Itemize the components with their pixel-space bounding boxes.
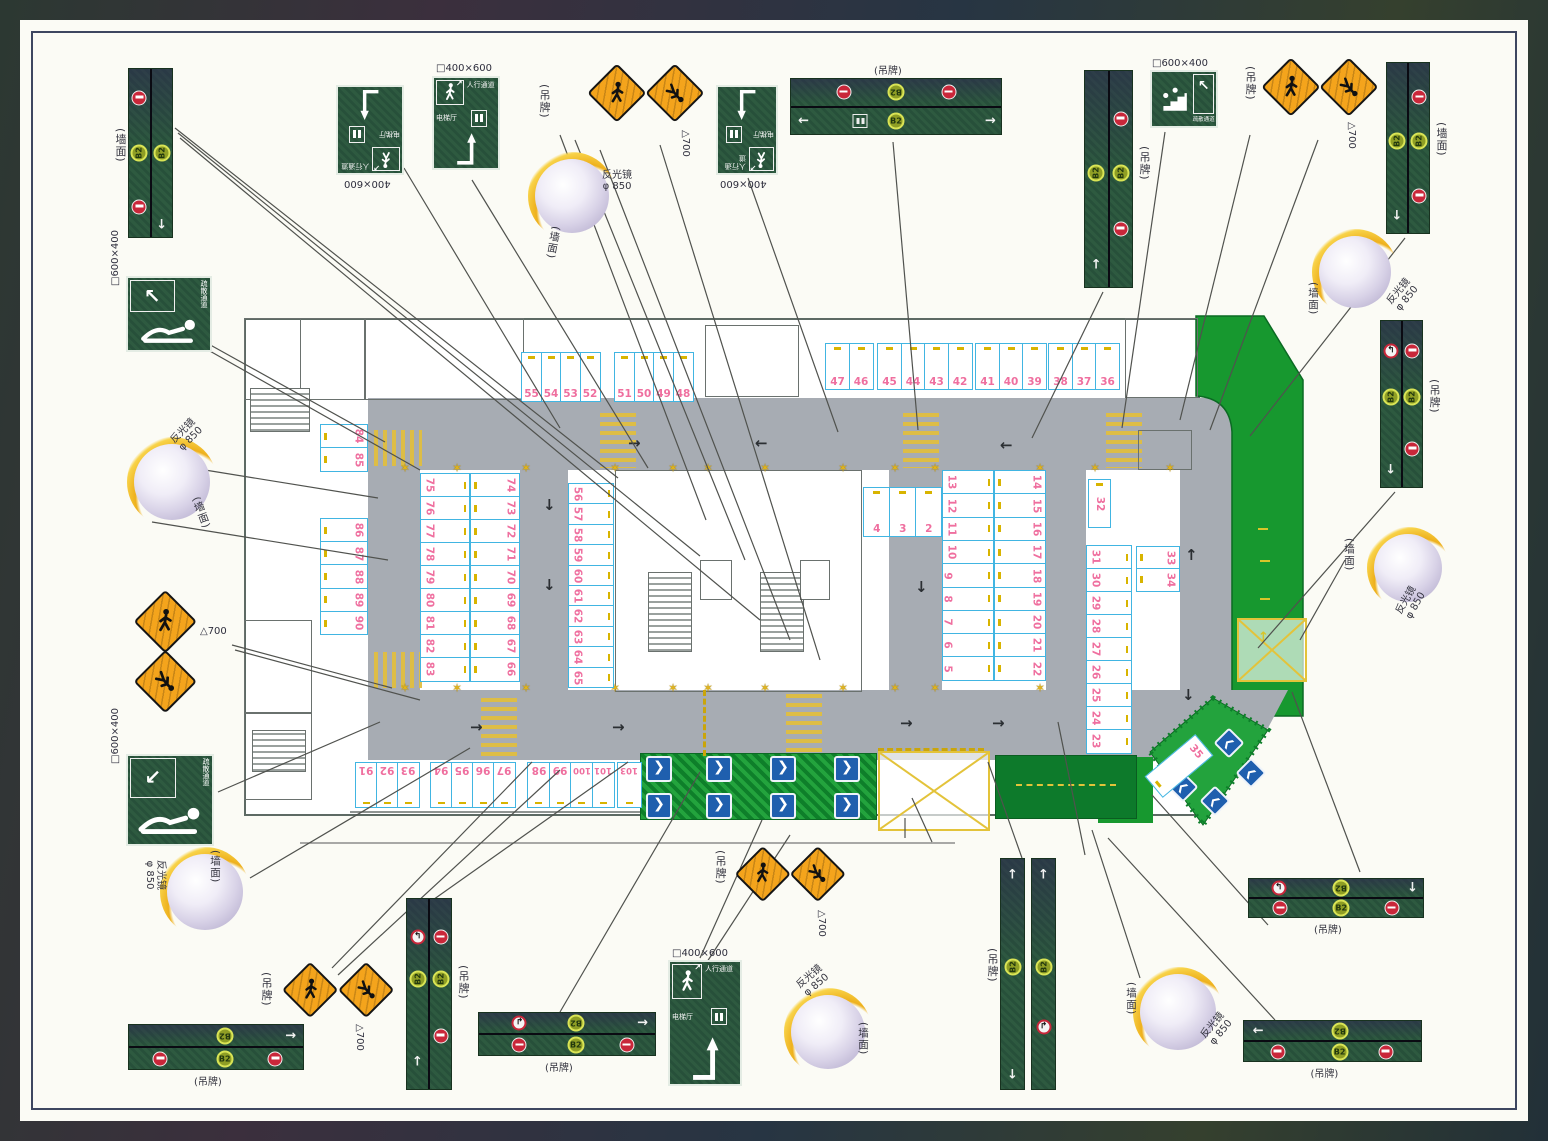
- parking-stall: 23: [1086, 729, 1132, 754]
- no-entry-icon: [1270, 1044, 1285, 1059]
- no-entry-icon: [1405, 343, 1420, 358]
- stall-number: 23: [1090, 734, 1100, 749]
- parking-stall: 39: [1022, 343, 1047, 390]
- wheel-stop-tick: [474, 643, 477, 650]
- parking-stall: 83: [420, 657, 470, 682]
- stall-number: 12: [946, 498, 956, 513]
- convex-mirror: [535, 159, 609, 233]
- stall-number: 87: [354, 546, 364, 561]
- wheel-stop-tick: [324, 527, 327, 534]
- hang-tag-label: (吊牌): [712, 850, 728, 885]
- warning-diamond-sign: [735, 846, 790, 901]
- stall-number: 53: [563, 389, 578, 399]
- size-label: 400×600: [344, 178, 391, 189]
- b2-level-badge: B2: [1382, 389, 1399, 406]
- hang-tag-label: (吊牌): [1242, 66, 1258, 101]
- warning-diamond-sign: [134, 650, 196, 712]
- b2-level-badge: B2: [153, 145, 170, 162]
- no-parking-crosshatch: [878, 751, 990, 831]
- no-left-turn-icon: ↰: [410, 930, 425, 945]
- parking-stall: 55: [521, 352, 542, 402]
- wall-face-label: (墙面): [1306, 282, 1321, 315]
- wall-face-label: (墙面): [208, 850, 223, 883]
- stall-number: 82: [424, 639, 434, 654]
- crawl-person-icon: [128, 800, 212, 841]
- lane-dash: [1260, 560, 1270, 562]
- diag-arrow-icon: ↗: [750, 163, 757, 172]
- stall-number: 61: [572, 589, 582, 604]
- no-entry-icon: [1384, 901, 1399, 916]
- size-label: 400×600: [720, 178, 767, 189]
- wheel-stop-tick: [608, 531, 611, 538]
- no-entry-icon: [1273, 901, 1288, 916]
- b2-level-badge: B2: [1333, 880, 1350, 897]
- parking-stall: 68: [470, 611, 520, 636]
- parking-stall: 11: [942, 517, 994, 542]
- stop-line: [703, 690, 706, 756]
- traffic-flow-arrow: ↓: [1182, 688, 1195, 703]
- stall-number: 22: [1032, 661, 1042, 676]
- parking-stall: 20: [994, 610, 1046, 635]
- parking-stall: 7: [942, 610, 994, 635]
- parking-stall: 22: [994, 656, 1046, 681]
- stall-number: 16: [1032, 522, 1042, 537]
- wheel-stop-tick: [587, 356, 594, 359]
- exit-ramp: [995, 755, 1137, 819]
- direction-sign-h_bot_mid: ↱B2→B2: [478, 1012, 656, 1056]
- no-entry-icon: [1412, 90, 1427, 105]
- diag-arrow-icon: ↗: [694, 963, 701, 972]
- parking-stall: 14: [994, 470, 1046, 495]
- no-left-turn-icon: ↰: [1383, 343, 1398, 358]
- wheel-stop-tick: [600, 802, 607, 805]
- wheel-stop-tick: [608, 511, 611, 518]
- evac-route-label: 疏散通道: [178, 756, 212, 800]
- arrow-left-icon: ←: [1253, 1023, 1264, 1038]
- sign-band: ↰B2↓: [1249, 879, 1423, 899]
- b2-level-badge: B2: [432, 970, 449, 987]
- wheel-stop-tick: [464, 551, 467, 558]
- column-marker-icon: ✶: [521, 682, 531, 694]
- chevron-arrow-icon: ❯: [834, 756, 860, 782]
- parking-stall: 54: [541, 352, 562, 402]
- traffic-flow-arrow: ↓: [543, 578, 556, 593]
- size-label: □400×600: [436, 63, 492, 74]
- wheel-stop-tick: [1081, 347, 1088, 350]
- no-entry-icon: [941, 85, 956, 100]
- traffic-flow-arrow: →: [612, 720, 625, 735]
- warning-diamond-sign: [338, 962, 394, 1018]
- stall-number: 9: [943, 572, 953, 579]
- chevron-arrow-icon: ❯: [646, 756, 672, 782]
- size-label-700: △700: [1346, 122, 1357, 149]
- parking-stall: 34: [1136, 568, 1180, 592]
- wheel-stop-tick: [548, 356, 555, 359]
- roadway: [368, 398, 1232, 470]
- wheel-stop-tick: [660, 356, 667, 359]
- exit-route-sign: ↗人行通道电梯厅: [716, 85, 778, 175]
- stop-line: [878, 748, 984, 751]
- sign-row: 电梯厅: [670, 1001, 740, 1033]
- stall-number: 38: [1053, 377, 1068, 387]
- stall-number: 63: [572, 629, 582, 644]
- pedestrian-warning-icon: [1277, 72, 1305, 102]
- elev-hall-label: 电梯厅: [670, 1013, 711, 1021]
- room-outline: [705, 325, 799, 397]
- wheel-stop-tick: [834, 347, 841, 350]
- column-marker-icon: ✶: [838, 682, 848, 694]
- stall-number: 20: [1032, 615, 1042, 630]
- parking-stall: 79: [420, 565, 470, 590]
- elevator-icon: [349, 126, 365, 143]
- no-entry-icon: [512, 1038, 527, 1053]
- wheel-stop-tick: [474, 620, 477, 627]
- roadway: [1180, 470, 1232, 690]
- stall-number: 33: [1166, 550, 1176, 565]
- stairs-icon: [1152, 72, 1191, 126]
- sign-band: B2↓: [1387, 63, 1409, 233]
- b2-level-badge: B2: [1331, 1043, 1348, 1060]
- stall-number: 11: [946, 522, 956, 537]
- no-entry-icon: [1378, 1044, 1393, 1059]
- parking-stall: 45: [877, 343, 902, 390]
- arrow-up-icon: ↑: [1091, 258, 1102, 273]
- wheel-stop-tick: [474, 528, 477, 535]
- sign-row: ↖疏散通道: [128, 278, 210, 314]
- b2-level-badge: B2: [1382, 389, 1399, 406]
- b2-level-badge: B2: [1088, 164, 1105, 181]
- wheel-stop-tick: [384, 802, 391, 805]
- stall-number: 44: [906, 377, 921, 387]
- warning-diamond-sign: [646, 64, 704, 122]
- stall-number: 40: [1004, 377, 1019, 387]
- parking-stall: 95: [451, 762, 474, 808]
- no-entry-icon: [1384, 901, 1399, 916]
- size-label-700: △700: [680, 130, 691, 157]
- warning-diamond-sign: [588, 64, 646, 122]
- parking-stall: 94: [430, 762, 453, 808]
- parking-stall: 15: [994, 493, 1046, 518]
- wheel-stop-tick: [474, 505, 477, 512]
- wheel-stop-tick: [858, 347, 865, 350]
- stall-number: 60: [572, 568, 582, 583]
- stall-number: 42: [953, 377, 968, 387]
- parking-stall: 61: [568, 585, 614, 607]
- parking-stall: 78: [420, 542, 470, 567]
- b2-level-badge: B2: [1331, 1022, 1348, 1039]
- wheel-stop-tick: [988, 549, 991, 556]
- wheel-stop-tick: [459, 802, 466, 805]
- parking-stall: 3: [889, 487, 917, 537]
- b2-level-badge: B2: [1411, 133, 1428, 150]
- stall-number: 24: [1090, 711, 1100, 726]
- hang-tag-label: (吊牌): [536, 84, 552, 119]
- stall-number: 10: [946, 545, 956, 560]
- traffic-flow-arrow: →: [900, 716, 913, 731]
- parking-stall: 40: [999, 343, 1024, 390]
- warning-diamond-sign: [1320, 58, 1378, 116]
- stall-number: 93: [401, 765, 416, 775]
- elevator-shaft: [700, 560, 732, 600]
- parking-stall: 21: [994, 633, 1046, 658]
- parking-stall: 31: [1086, 545, 1132, 570]
- stall-number: 88: [354, 569, 364, 584]
- stall-number: 4: [873, 524, 880, 534]
- wheel-stop-tick: [957, 347, 964, 350]
- no-entry-icon: [1405, 441, 1420, 456]
- stall-number: 56: [572, 487, 582, 502]
- parking-stall: 48: [673, 352, 694, 402]
- mirror-label: 反光镜φ 850: [602, 170, 632, 192]
- wheel-stop-tick: [324, 573, 327, 580]
- warning-diamond-sign: [282, 962, 338, 1018]
- parking-stall: 72: [470, 519, 520, 544]
- wheel-stop-tick: [1008, 347, 1015, 350]
- elev-hall-label: 电梯厅: [742, 130, 776, 138]
- parking-stall: 62: [568, 605, 614, 627]
- wheel-stop-tick: [464, 666, 467, 673]
- wheel-stop-tick: [608, 592, 611, 599]
- column-marker-icon: ✶: [1165, 462, 1175, 474]
- stall-number: 32: [1095, 496, 1105, 511]
- direction-sign-h_top: B2←B2→: [790, 78, 1002, 135]
- wheel-stop-tick: [988, 479, 991, 486]
- sign-band: ↑B2↱: [1032, 859, 1055, 1089]
- wheel-stop-tick: [998, 502, 1001, 509]
- stall-number: 71: [506, 547, 516, 562]
- no-left-turn-icon: ↰: [1383, 343, 1398, 358]
- elev-hall-label: 电梯厅: [365, 130, 402, 138]
- stall-number: 59: [572, 548, 582, 563]
- traffic-flow-arrow: ↓: [543, 498, 556, 513]
- stall-number: 89: [354, 593, 364, 608]
- no-entry-icon: [1412, 188, 1427, 203]
- traffic-flow-arrow: →: [992, 716, 1005, 731]
- ped-route-label: 人行通道: [718, 145, 747, 173]
- wheel-stop-tick: [925, 491, 932, 494]
- direction-sign-h_br_top: ↰B2↓B2: [1248, 878, 1424, 918]
- no-entry-icon: [1113, 221, 1128, 236]
- arrow-left-icon: ←: [798, 113, 809, 128]
- stall-number: 46: [854, 377, 869, 387]
- sign-row: ↗人行通道: [338, 145, 402, 173]
- direction-sign-v_bottom: ↰B2↑B2: [406, 898, 452, 1090]
- parking-stall: 71: [470, 542, 520, 567]
- wheel-stop-tick: [933, 347, 940, 350]
- parking-stall: 17: [994, 540, 1046, 565]
- stall-number: 15: [1032, 498, 1042, 513]
- stall-number: 3: [899, 524, 906, 534]
- stall-number: 28: [1090, 619, 1100, 634]
- parking-stall: 84: [320, 424, 368, 449]
- stall-number: 6: [943, 642, 953, 649]
- wheel-stop-tick: [873, 491, 880, 494]
- crosswalk: [903, 413, 939, 468]
- wheel-stop-tick: [1126, 738, 1129, 745]
- wheel-stop-tick: [1057, 347, 1064, 350]
- evac-arrow-icon: ↖: [130, 280, 175, 312]
- stall-number: 85: [354, 453, 364, 468]
- stall-number: 76: [424, 501, 434, 516]
- b2-level-badge: B2: [567, 1037, 584, 1054]
- b2-level-badge: B2: [888, 112, 905, 129]
- size-label: □600×400: [110, 708, 121, 764]
- parking-stall: 5: [942, 656, 994, 681]
- stall-number: 78: [424, 547, 434, 562]
- stall-number: 97: [497, 765, 512, 775]
- parking-stall: 10: [942, 540, 994, 565]
- wheel-stop-tick: [998, 595, 1001, 602]
- wheel-stop-tick: [474, 666, 477, 673]
- exit-route-sign: ↗人行通道电梯厅: [668, 960, 742, 1086]
- no-right-turn-icon: ↱: [1036, 1019, 1051, 1034]
- parking-stall: 74: [470, 473, 520, 498]
- arrow-down-icon: ↓: [1392, 209, 1403, 224]
- no-entry-icon: [836, 85, 851, 100]
- no-entry-icon: [268, 1051, 283, 1066]
- wheel-stop-tick: [608, 613, 611, 620]
- sign-row: ↗人行通道: [718, 145, 776, 173]
- sign-band: B2: [430, 899, 451, 1089]
- no-entry-icon: [153, 1051, 168, 1066]
- stall-number: 57: [572, 507, 582, 522]
- wheel-stop-tick: [998, 549, 1001, 556]
- exit-direction-arrow: [670, 1033, 740, 1082]
- wheel-stop-tick: [464, 643, 467, 650]
- wheel-stop-tick: [1126, 669, 1129, 676]
- parking-stall: 33: [1136, 546, 1180, 570]
- exit-route-sign: ↗人行通道电梯厅: [432, 76, 500, 170]
- b2-level-badge: B2: [1112, 164, 1129, 181]
- sign-band: B2: [1403, 321, 1423, 487]
- wheel-stop-tick: [324, 550, 327, 557]
- b2-level-badge: B2: [567, 1037, 584, 1054]
- sign-band: B2: [129, 1048, 303, 1069]
- parking-stall: 44: [901, 343, 926, 390]
- direction-sign-v_pair_b: ↑B2↱: [1031, 858, 1056, 1090]
- b2-level-badge: B2: [1389, 133, 1406, 150]
- b2-level-badge: B2: [1331, 1022, 1348, 1039]
- parking-stall: 77: [420, 519, 470, 544]
- no-entry-icon: [268, 1051, 283, 1066]
- wheel-stop-tick: [988, 502, 991, 509]
- sign-mount-label: (吊牌): [1426, 379, 1442, 414]
- stall-number: 98: [531, 765, 546, 775]
- wheel-stop-tick: [988, 595, 991, 602]
- ped-route-label: 人行通道: [338, 145, 370, 173]
- diag-arrow-icon: ↗: [456, 79, 463, 88]
- wheel-stop-tick: [1140, 554, 1143, 561]
- b2-level-badge: B2: [131, 145, 148, 162]
- stall-number: 29: [1090, 596, 1100, 611]
- parking-stall: 81: [420, 611, 470, 636]
- direction-sign-v_top_mid: B2↑B2: [1084, 70, 1133, 288]
- wheel-stop-tick: [464, 574, 467, 581]
- no-left-turn-icon: ↰: [1271, 881, 1286, 896]
- stall-number: 18: [1032, 568, 1042, 583]
- size-label: □600×400: [1152, 58, 1208, 69]
- parking-stall: 32: [1088, 479, 1111, 528]
- no-entry-icon: [941, 85, 956, 100]
- size-label: □600×400: [110, 230, 121, 286]
- pedestrian-warning-icon: [297, 975, 324, 1004]
- wheel-stop-tick: [528, 356, 535, 359]
- b2-level-badge: B2: [1112, 164, 1129, 181]
- wheel-stop-tick: [984, 347, 991, 350]
- b2-level-badge: B2: [1331, 1043, 1348, 1060]
- wheel-stop-tick: [998, 525, 1001, 532]
- stall-number: 94: [434, 765, 449, 775]
- stairwell: [250, 388, 310, 432]
- stall-number: 66: [506, 662, 516, 677]
- crosswalk: [786, 694, 822, 756]
- b2-level-badge: B2: [216, 1027, 233, 1044]
- no-entry-icon: [1270, 1044, 1285, 1059]
- stall-number: 83: [424, 662, 434, 677]
- sign-row: ↙疏散通道: [128, 756, 212, 800]
- b2-level-badge: B2: [1004, 959, 1021, 976]
- stall-number: 70: [506, 570, 516, 585]
- stall-number: 99: [553, 765, 568, 775]
- wheel-stop-tick: [988, 619, 991, 626]
- wheel-stop-tick: [1155, 780, 1161, 787]
- sign-row: 电梯厅: [718, 123, 776, 145]
- chevron-arrow-icon: ❯: [1199, 785, 1230, 816]
- stall-number: 101: [594, 765, 612, 775]
- wheel-stop-tick: [1126, 623, 1129, 630]
- arrow-right-icon: →: [637, 1016, 648, 1031]
- traffic-flow-arrow: ↑: [1185, 548, 1198, 563]
- parking-stall: 56: [568, 483, 614, 505]
- wheel-stop-tick: [501, 802, 508, 805]
- sign-band: B2↑: [1085, 71, 1110, 287]
- sign-band: B2: [1249, 899, 1423, 917]
- stairs-evacuation-sign: ↖疏散通道: [1150, 70, 1218, 128]
- size-label: □400×600: [672, 948, 728, 959]
- wheel-stop-tick: [557, 802, 564, 805]
- wheel-stop-tick: [608, 572, 611, 579]
- evacuation-route-sign: ↙疏散通道: [126, 754, 214, 846]
- parking-stall: 93: [397, 762, 420, 808]
- stall-number: 96: [476, 765, 491, 775]
- ped-route-label: 人行通道: [704, 962, 740, 1001]
- arrow-down-icon: ↓: [1407, 881, 1418, 896]
- stall-number: 79: [424, 570, 434, 585]
- parking-stall: 101: [592, 762, 615, 808]
- no-entry-icon: [433, 930, 448, 945]
- wheel-stop-tick: [474, 482, 477, 489]
- room-outline: [244, 620, 312, 714]
- stall-number: 36: [1100, 377, 1115, 387]
- no-left-turn-icon: ↰: [1271, 881, 1286, 896]
- parking-stall: 75: [420, 473, 470, 498]
- stall-number: 95: [455, 765, 470, 775]
- sign-band: ←B2: [1244, 1021, 1421, 1042]
- sign-mount-label: (墙面): [112, 128, 128, 163]
- pedestrian-exit-icon: ↗: [672, 964, 702, 999]
- b2-level-badge: B2: [1088, 164, 1105, 181]
- wheel-stop-tick: [1126, 554, 1129, 561]
- wheel-stop-tick: [626, 802, 633, 805]
- elev-hall-label: 电梯厅: [434, 114, 471, 122]
- lane-dash: [1258, 528, 1268, 530]
- b2-level-badge: B2: [153, 145, 170, 162]
- b2-level-badge: B2: [216, 1050, 233, 1067]
- chevron-arrow-icon: ❯: [770, 793, 796, 819]
- column-marker-icon: ✶: [890, 462, 900, 474]
- size-label-700: △700: [354, 1024, 365, 1051]
- wheel-stop-tick: [608, 490, 611, 497]
